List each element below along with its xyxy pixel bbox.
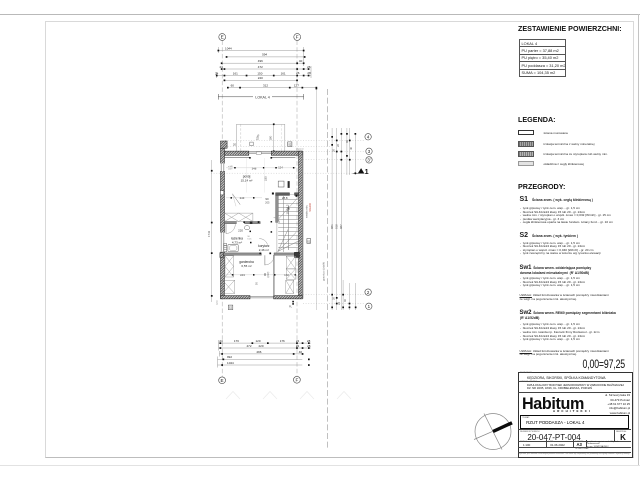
svg-text:60: 60 xyxy=(231,83,235,87)
svg-text:1: 1 xyxy=(365,167,369,176)
svg-text:220: 220 xyxy=(258,76,263,80)
svg-text:161: 161 xyxy=(233,71,238,75)
svg-text:881: 881 xyxy=(330,224,334,229)
svg-text:90: 90 xyxy=(265,197,269,201)
svg-text:594: 594 xyxy=(262,53,267,57)
svg-text:472: 472 xyxy=(258,65,263,69)
svg-text:17x18,2: 17x18,2 xyxy=(286,204,290,214)
svg-text:1044: 1044 xyxy=(227,361,234,365)
svg-text:496: 496 xyxy=(258,59,263,63)
svg-text:28,8: 28,8 xyxy=(282,196,288,200)
svg-text:S2: S2 xyxy=(229,306,233,310)
svg-text:26: 26 xyxy=(332,296,336,300)
svg-text:161: 161 xyxy=(281,71,286,75)
svg-text:225: 225 xyxy=(264,176,268,181)
svg-text:wnęka min.: wnęka min. xyxy=(304,205,308,218)
svg-text:243: 243 xyxy=(240,273,245,277)
svg-text:60: 60 xyxy=(343,298,347,302)
svg-text:26: 26 xyxy=(296,71,300,75)
svg-text:176: 176 xyxy=(234,339,239,343)
svg-text:LOKAL 4: LOKAL 4 xyxy=(255,95,269,99)
svg-text:120: 120 xyxy=(255,339,260,343)
svg-text:987: 987 xyxy=(339,224,343,229)
svg-text:26: 26 xyxy=(332,148,336,152)
svg-text:S2: S2 xyxy=(288,143,292,147)
svg-text:x149: x149 xyxy=(228,169,233,171)
svg-text:4,73 m²: 4,73 m² xyxy=(232,240,242,244)
svg-text:176: 176 xyxy=(280,339,285,343)
svg-text:granica działki: granica działki xyxy=(322,262,326,281)
svg-text:40: 40 xyxy=(349,146,353,150)
svg-text:S1: S1 xyxy=(307,239,311,243)
svg-text:E: E xyxy=(221,35,224,40)
svg-text:60: 60 xyxy=(345,139,349,143)
svg-text:918: 918 xyxy=(335,224,339,229)
svg-text:E: E xyxy=(221,378,224,383)
svg-text:1044: 1044 xyxy=(225,46,232,50)
svg-text:220: 220 xyxy=(238,228,243,232)
svg-text:496: 496 xyxy=(256,350,261,354)
svg-text:90x200: 90x200 xyxy=(308,202,312,211)
svg-text:F: F xyxy=(295,378,298,383)
svg-text:180: 180 xyxy=(269,135,273,140)
svg-text:127: 127 xyxy=(294,83,299,87)
svg-text:PL: PL xyxy=(289,306,293,309)
svg-text:992: 992 xyxy=(227,355,232,359)
svg-text:40: 40 xyxy=(299,59,303,63)
svg-text:2,46 m²: 2,46 m² xyxy=(259,248,269,252)
svg-text:26: 26 xyxy=(336,143,340,147)
svg-text:243: 243 xyxy=(240,196,245,200)
svg-text:15%: 15% xyxy=(255,134,260,141)
svg-text:6,55 m²: 6,55 m² xyxy=(241,264,251,268)
svg-text:472: 472 xyxy=(246,344,251,348)
svg-text:3': 3' xyxy=(367,158,370,163)
svg-text:F: F xyxy=(296,35,299,40)
svg-text:1743: 1743 xyxy=(207,230,211,237)
svg-text:312: 312 xyxy=(263,83,268,87)
svg-text:20: 20 xyxy=(233,142,237,146)
svg-text:28: 28 xyxy=(307,71,311,75)
svg-text:wyłaz: wyłaz xyxy=(216,300,218,305)
svg-text:90: 90 xyxy=(256,282,259,285)
svg-text:wsparcie: wsparcie xyxy=(296,149,305,151)
svg-text:220: 220 xyxy=(258,344,263,348)
svg-text:(210): (210) xyxy=(267,271,270,277)
svg-text:348: 348 xyxy=(252,166,257,170)
svg-text:205: 205 xyxy=(265,201,270,205)
svg-text:h:25: h:25 xyxy=(248,238,253,240)
svg-text:150: 150 xyxy=(257,71,262,75)
